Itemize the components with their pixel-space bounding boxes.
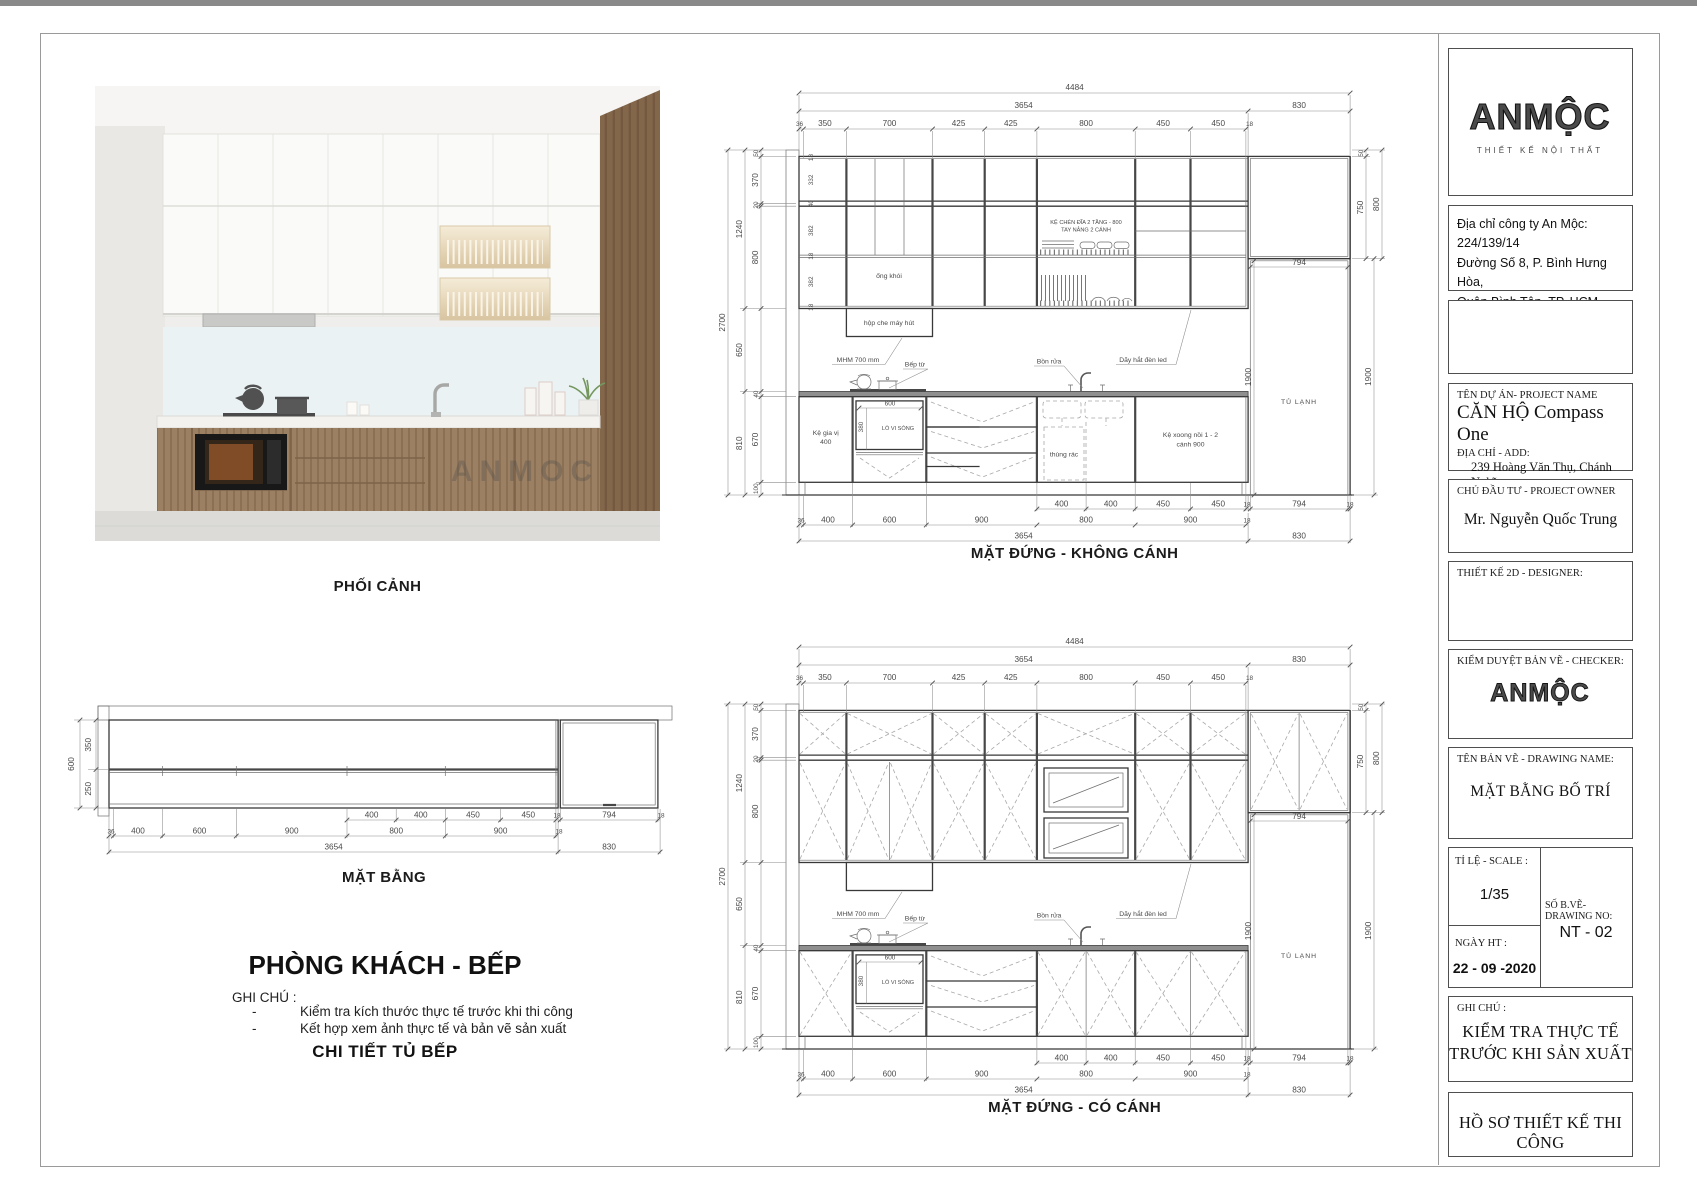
- drawing-number-label: SỐ B.VẼ-DRAWING NO:: [1540, 894, 1632, 922]
- dim-label: 450: [1211, 1054, 1225, 1063]
- dim-label: 810: [735, 436, 744, 450]
- dim-label: 800: [1372, 751, 1381, 765]
- dim-label: 40: [753, 944, 760, 952]
- dim-label: 382: [808, 225, 815, 236]
- dim-label: 18: [1346, 502, 1354, 509]
- dim-label: 450: [1156, 500, 1170, 509]
- photo-watermark: ANMOC: [451, 455, 599, 488]
- checker-logo-text: ANMỘC: [1490, 677, 1589, 707]
- dim-label: 900: [1184, 516, 1198, 525]
- dim-label: 450: [1156, 673, 1170, 682]
- drawing-label: 400: [820, 439, 832, 446]
- owner-label: CHỦ ĐẦU TƯ - PROJECT OWNER: [1449, 480, 1632, 497]
- dim-label: 900: [975, 516, 989, 525]
- dim-label: 670: [751, 986, 760, 1000]
- dim-label: 18: [1243, 1056, 1251, 1063]
- dim-label: 3654: [1014, 655, 1033, 664]
- dim-label: 830: [602, 843, 616, 852]
- grid-horizontal-divider: [1449, 925, 1540, 926]
- elevation-with-doors-svg: 4484 3654 830 36 350 700 425 425 800 450…: [682, 629, 1390, 1129]
- dim-label: 400: [1055, 500, 1069, 509]
- drawing-label: Kệ gia vị: [813, 430, 840, 437]
- dim-label: 800: [751, 804, 760, 818]
- dim-label: 700: [883, 673, 897, 682]
- dim-label: 350: [818, 119, 832, 128]
- notes-heading: GHI CHÚ :: [232, 990, 297, 1005]
- dim-label: 400: [1104, 1054, 1118, 1063]
- dim-label: 3654: [1014, 101, 1033, 110]
- dim-label: 450: [466, 811, 480, 820]
- dim-label: 794: [602, 811, 616, 820]
- note-bullet: -: [252, 1004, 257, 1019]
- titleblock-divider: [1438, 33, 1439, 1165]
- dim-label: 400: [365, 811, 379, 820]
- drawing-label: Bếp từ: [905, 914, 926, 923]
- dim-label: 830: [1292, 101, 1306, 110]
- dim-label: 600: [193, 827, 207, 836]
- dim-label: 1900: [1364, 921, 1373, 940]
- dim-label: 400: [821, 1070, 835, 1079]
- dim-label: 800: [389, 827, 403, 836]
- dim-label: 18: [553, 813, 561, 820]
- dim-label: 600: [885, 401, 896, 408]
- kitchen-render-svg: ANMOC: [95, 86, 660, 541]
- microwave: [195, 434, 287, 490]
- elevation-no-doors-svg: 4484 3654 830 36 350 700 425 425 800 450…: [682, 75, 1390, 575]
- date-label: NGÀY HT :: [1449, 932, 1507, 949]
- plan-cabinet: [109, 720, 558, 808]
- tb-notes-line: KIỂM TRA THỰC TẾ: [1449, 1014, 1632, 1042]
- dim-label: 4484: [1065, 83, 1084, 92]
- dim-label: 400: [131, 827, 145, 836]
- project-name-label: TÊN DỰ ÁN- PROJECT NAME: [1449, 384, 1632, 401]
- drawing-label: MHM 700 mm: [837, 911, 880, 918]
- dim-label: 794: [1292, 1054, 1306, 1063]
- titleblock-checker-box: KIỂM DUYỆT BẢN VẼ - CHECKER: ANMỘC: [1448, 649, 1633, 739]
- drawing-number-value: NT - 02: [1540, 924, 1632, 942]
- dim-label: 370: [751, 173, 760, 187]
- dim-label: 1900: [1244, 921, 1253, 940]
- elevation-title: MẶT ĐỨNG - KHÔNG CÁNH: [971, 544, 1179, 562]
- elevation-title: MẶT ĐỨNG - CÓ CÁNH: [988, 1098, 1161, 1116]
- dim-label: 450: [1211, 673, 1225, 682]
- company-logo: ANMỘC THIẾT KẾ NỘI THẤT: [1449, 49, 1632, 195]
- dim-label: 20: [753, 755, 760, 763]
- dim-label: 18: [808, 303, 815, 311]
- dim-label: 800: [1079, 1070, 1093, 1079]
- dim-label: 3654: [324, 843, 343, 852]
- tb-notes-line: TRƯỚC KHI SẢN XUẤT: [1449, 1042, 1632, 1064]
- dim-label: 100: [753, 483, 760, 494]
- scale-label: TỈ LỆ - SCALE :: [1449, 850, 1528, 867]
- dim-label: 400: [414, 811, 428, 820]
- plan-title: MẶT BẰNG: [342, 868, 426, 886]
- drawing-label: Dãy hắt đèn led: [1119, 909, 1167, 918]
- dim-label: 4484: [1065, 637, 1084, 646]
- dim-label: 750: [1356, 754, 1365, 768]
- scale-value: 1/35: [1449, 886, 1540, 903]
- drawing-label: TỦ LẠNH: [1281, 397, 1317, 406]
- document-type: HỒ SƠ THIẾT KẾ THI CÔNG: [1449, 1093, 1632, 1153]
- dim-label: 100: [753, 1037, 760, 1048]
- titleblock-notes-box: GHI CHÚ : KIỂM TRA THỰC TẾ TRƯỚC KHI SẢN…: [1448, 996, 1633, 1082]
- photo-caption: PHỐI CẢNH: [95, 578, 660, 595]
- drawing-label: Kệ xoong nồi 1 - 2: [1163, 430, 1218, 439]
- dim-label: 425: [1004, 119, 1018, 128]
- company-address-line: Đường Số 8, P. Bình Hưng Hòa,: [1457, 254, 1624, 293]
- logo-subtitle: THIẾT KẾ NỘI THẤT: [1477, 145, 1603, 155]
- dim-label: 370: [751, 727, 760, 741]
- dim-label: 794: [1292, 258, 1306, 267]
- page-top-edge: [0, 0, 1697, 6]
- owner-name: Mr. Nguyễn Quốc Trung: [1449, 497, 1632, 529]
- dim-label: 18: [1243, 518, 1251, 525]
- dim-label: 36: [797, 1072, 805, 1079]
- company-address-line: Địa chỉ công ty An Mộc: 224/139/14: [1457, 215, 1624, 254]
- dim-label: 800: [1372, 197, 1381, 211]
- titleblock-designer-box: THIẾT KẾ 2D - DESIGNER:: [1448, 561, 1633, 641]
- drawing-name: MẶT BẰNG BỐ TRÍ: [1449, 765, 1632, 801]
- dim-label: 400: [821, 516, 835, 525]
- dim-label: 18: [1246, 121, 1254, 128]
- checker-label: KIỂM DUYỆT BẢN VẼ - CHECKER:: [1449, 650, 1632, 667]
- dim-label: 600: [885, 955, 896, 962]
- dim-label: 1900: [1244, 367, 1253, 386]
- dim-label: 830: [1292, 655, 1306, 664]
- dim-label: 20: [753, 201, 760, 209]
- dim-label: 700: [883, 119, 897, 128]
- dim-label: 18: [808, 154, 815, 162]
- dim-label: 450: [521, 811, 535, 820]
- elev2-structure: [782, 704, 1354, 1049]
- drawing-label: TỦ LẠNH: [1281, 951, 1317, 960]
- dim-label: 600: [883, 516, 897, 525]
- dim-label: 50: [1358, 149, 1365, 157]
- dim-label: 1240: [735, 220, 744, 239]
- drawing-label: Bồn rửa: [1037, 911, 1062, 920]
- dim-label: 1240: [735, 774, 744, 793]
- drawing-label: LÒ VI SÓNG: [882, 425, 914, 432]
- dim-label: 400: [1104, 500, 1118, 509]
- dim-label: 18: [1246, 675, 1254, 682]
- dim-label: 3654: [1014, 532, 1033, 541]
- dim-label: 3654: [1014, 1086, 1033, 1095]
- dim-label: 600: [883, 1070, 897, 1079]
- dim-label: 250: [84, 782, 93, 796]
- plan-fridge-space: [560, 720, 658, 808]
- note-bullet: -: [252, 1021, 257, 1036]
- dim-label: 800: [1079, 516, 1093, 525]
- dim-label: 900: [1184, 1070, 1198, 1079]
- dim-label: 40: [753, 390, 760, 398]
- dim-label: 2700: [718, 313, 727, 332]
- sheet-page: { "photo": { "caption": "PHỐI CẢNH", "wa…: [0, 0, 1697, 1200]
- titleblock-scale-grid: TỈ LỆ - SCALE : 1/35 NGÀY HT : 22 - 09 -…: [1448, 847, 1633, 988]
- project-name: CĂN HỘ Compass One: [1449, 401, 1632, 446]
- dim-label: 1900: [1364, 367, 1373, 386]
- logo-text: ANMỘC: [1470, 95, 1611, 137]
- drawing-label: LÒ VI SÓNG: [882, 979, 914, 986]
- drawing-label: hộp che máy hút: [864, 320, 914, 327]
- dim-label: 800: [1079, 119, 1093, 128]
- dim-label: 18: [808, 252, 815, 260]
- dim-label: 794: [1292, 812, 1306, 821]
- designer-label: THIẾT KẾ 2D - DESIGNER:: [1449, 562, 1632, 579]
- dim-label: 40: [808, 200, 815, 208]
- dim-label: 830: [1292, 532, 1306, 541]
- render-hood: [203, 314, 315, 327]
- dim-label: 425: [952, 673, 966, 682]
- note-item: Kiểm tra kích thước thực tế trước khi th…: [300, 1004, 573, 1019]
- dim-label: 900: [494, 827, 508, 836]
- elevation-with-doors: 4484 3654 830 36 350 700 425 425 800 450…: [682, 629, 1390, 1129]
- dim-label: 36: [796, 121, 804, 128]
- dim-label: 18: [555, 829, 563, 836]
- drawing-label: Bồn rửa: [1037, 357, 1062, 366]
- drawing-name-label: TÊN BẢN VẼ - DRAWING NAME:: [1449, 748, 1632, 765]
- dim-label: 450: [1211, 500, 1225, 509]
- drawing-label: Dãy hắt đèn led: [1119, 355, 1167, 364]
- dim-label: 450: [1156, 119, 1170, 128]
- dim-label: 36: [796, 675, 804, 682]
- dim-label: 18: [1346, 1056, 1354, 1063]
- titleblock-footer-box: HỒ SƠ THIẾT KẾ THI CÔNG: [1448, 1092, 1633, 1157]
- dim-label: 350: [818, 673, 832, 682]
- drawing-label: KỆ CHÉN ĐĨA 2 TẦNG - 800: [1050, 218, 1121, 226]
- drawing-label: MHM 700 mm: [837, 357, 880, 364]
- dim-label: 50: [753, 149, 760, 157]
- dim-label: 800: [1079, 673, 1093, 682]
- kitchen-render: ANMOC: [95, 86, 660, 541]
- plan-view: 600 350 250 400 400 450 450 18 794 18 36…: [60, 598, 720, 898]
- dim-label: 425: [952, 119, 966, 128]
- dim-label: 382: [808, 276, 815, 287]
- dim-label: 650: [735, 897, 744, 911]
- dim-label: 600: [67, 757, 76, 771]
- room-title: PHÒNG KHÁCH - BẾP: [200, 950, 570, 981]
- note-item: Kết hợp xem ảnh thực tế và bản vẽ sản xu…: [300, 1021, 566, 1036]
- dim-label: 900: [975, 1070, 989, 1079]
- dim-label: 18: [657, 813, 665, 820]
- titleblock-drawingname-box: TÊN BẢN VẼ - DRAWING NAME: MẶT BẰNG BỐ T…: [1448, 747, 1633, 839]
- dim-label: 50: [753, 703, 760, 711]
- dim-label: 670: [751, 432, 760, 446]
- dim-label: 18: [1243, 502, 1251, 509]
- drawing-label: thùng rác: [1050, 452, 1079, 459]
- drawing-label: cánh 900: [1177, 442, 1205, 449]
- checker-logo: ANMỘC: [1449, 667, 1632, 717]
- render-countertop: [157, 416, 600, 428]
- titleblock-owner-box: CHỦ ĐẦU TƯ - PROJECT OWNER Mr. Nguyễn Qu…: [1448, 479, 1633, 553]
- tb-notes-label: GHI CHÚ :: [1449, 997, 1632, 1014]
- dim-label: 650: [735, 343, 744, 357]
- date-value: 22 - 09 -2020: [1449, 960, 1540, 976]
- dim-label: 332: [808, 174, 815, 185]
- dim-label: 2700: [718, 867, 727, 886]
- dim-label: 380: [858, 421, 865, 432]
- dim-label: 794: [1292, 500, 1306, 509]
- dim-label: 450: [1211, 119, 1225, 128]
- dim-label: 18: [1243, 1072, 1251, 1079]
- drawing-label: TAY NÂNG 2 CÁNH: [1061, 227, 1111, 234]
- dim-label: 800: [751, 250, 760, 264]
- titleblock-project-box: TÊN DỰ ÁN- PROJECT NAME CĂN HỘ Compass O…: [1448, 383, 1633, 471]
- titleblock-logo-box: ANMỘC THIẾT KẾ NỘI THẤT: [1448, 48, 1633, 196]
- dim-label: 425: [1004, 673, 1018, 682]
- dim-label: 400: [1055, 1054, 1069, 1063]
- titleblock-address-box: Địa chỉ công ty An Mộc: 224/139/14 Đường…: [1448, 205, 1633, 291]
- render-tall-wood-panel: [600, 90, 660, 511]
- dim-label: 380: [858, 975, 865, 986]
- dim-label: 350: [84, 738, 93, 752]
- dim-label: 36: [797, 518, 805, 525]
- dim-label: 830: [1292, 1086, 1306, 1095]
- dim-label: 450: [1156, 1054, 1170, 1063]
- dim-label: 36: [107, 829, 115, 836]
- dim-label: 810: [735, 990, 744, 1004]
- dim-label: 50: [1358, 703, 1365, 711]
- dim-label: 750: [1356, 200, 1365, 214]
- drawing-label: ống khói: [876, 271, 902, 280]
- plan-view-svg: 600 350 250 400 400 450 450 18 794 18 36…: [60, 598, 720, 898]
- detail-title: CHI TIẾT TỦ BẾP: [200, 1042, 570, 1062]
- project-address-label: ĐỊA CHỈ - ADD:: [1449, 446, 1632, 459]
- dim-label: 900: [285, 827, 299, 836]
- drawing-label: Bếp từ: [905, 360, 926, 369]
- titleblock-empty-box: [1448, 300, 1633, 374]
- elevation-no-doors: 4484 3654 830 36 350 700 425 425 800 450…: [682, 75, 1390, 575]
